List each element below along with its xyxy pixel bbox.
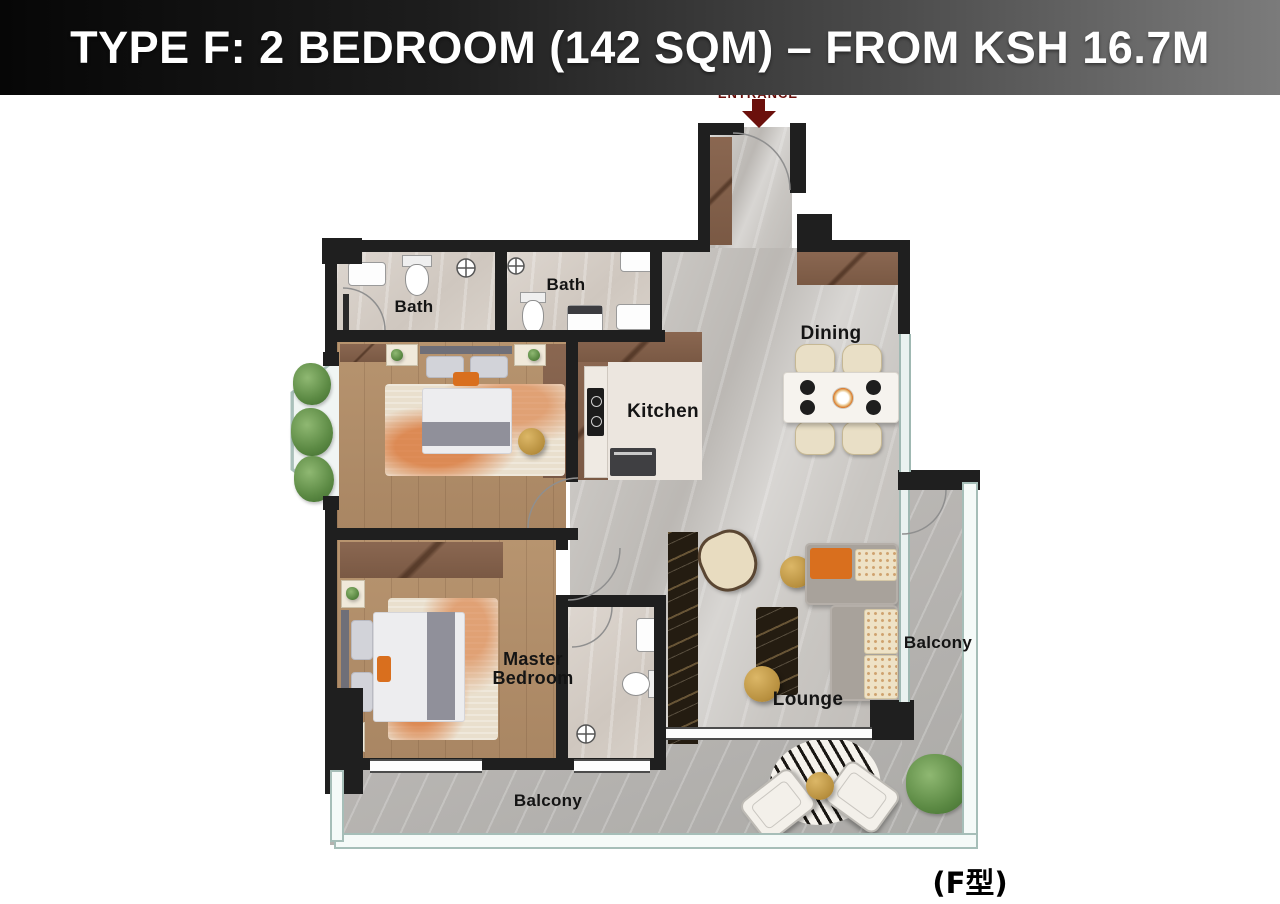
lounge-label: Lounge — [768, 689, 848, 711]
bedroom2-nightstand — [514, 344, 546, 366]
bath-right-toilet — [522, 300, 544, 334]
bath-right-sink — [616, 304, 654, 330]
bay-plant-icon — [293, 363, 331, 405]
kitchen-oven — [610, 448, 656, 476]
wall-segment — [698, 123, 710, 250]
balcony-plant-icon — [906, 754, 968, 814]
wall-segment — [325, 330, 665, 342]
wall-segment — [323, 352, 339, 366]
bedroom2-cabinet — [340, 344, 388, 362]
bedroom-balcony-slider — [370, 759, 482, 773]
wall-segment — [654, 595, 666, 770]
dining-chair — [795, 421, 835, 455]
bath-left-label: Bath — [374, 297, 454, 317]
wall-segment — [797, 214, 832, 252]
wall-segment — [323, 496, 339, 510]
balcony-bottom-label: Balcony — [506, 791, 590, 811]
kitchen-label: Kitchen — [620, 401, 706, 423]
balcony-railing — [330, 770, 344, 842]
dining-chair — [842, 421, 882, 455]
bedroom-balcony-slider — [574, 759, 650, 773]
wall-segment — [325, 240, 337, 366]
wall-segment — [870, 700, 914, 740]
sofa-cushion — [864, 609, 898, 654]
wall-segment — [556, 528, 568, 550]
entrance-arrowhead-icon — [742, 111, 776, 128]
master-bedroom-label: Master Bedroom — [489, 650, 577, 688]
lounge-balcony-glass — [899, 490, 910, 702]
bath-right-label: Bath — [526, 275, 606, 295]
lounge-balcony-slider — [666, 727, 872, 740]
balcony-railing — [334, 833, 978, 849]
master-wardrobe — [340, 542, 503, 578]
unit-type-label: (F型) — [890, 860, 1050, 902]
title-banner: TYPE F: 2 BEDROOM (142 SQM) – FROM KSH 1… — [0, 0, 1280, 95]
wall-segment — [556, 595, 666, 607]
balcony-railing — [962, 482, 978, 842]
bedroom2-pouf — [518, 428, 545, 455]
sofa-cushion — [864, 655, 898, 699]
wall-segment — [698, 123, 744, 135]
floor-plan-page: TYPE F: 2 BEDROOM (142 SQM) – FROM KSH 1… — [0, 0, 1280, 904]
wall-segment — [790, 123, 806, 193]
page-title: TYPE F: 2 BEDROOM (142 SQM) – FROM KSH 1… — [70, 22, 1210, 74]
wall-segment — [898, 240, 910, 334]
dining-window — [899, 334, 911, 472]
balcony-right-label: Balcony — [896, 633, 980, 653]
sofa-cushion — [855, 549, 897, 581]
sofa-cushion-orange — [810, 548, 852, 579]
dining-label: Dining — [791, 323, 871, 345]
wall-segment — [343, 294, 349, 330]
tv-feature-wall — [668, 532, 698, 744]
bedroom2-bed — [420, 346, 512, 454]
bath-left-toilet — [405, 264, 429, 296]
wall-segment — [650, 240, 662, 342]
master-nightstand — [341, 580, 365, 608]
dining-table — [783, 372, 899, 423]
entry-closet — [710, 137, 732, 245]
bay-plant-icon — [291, 408, 333, 456]
wall-segment — [325, 528, 578, 540]
balcony-table — [806, 772, 834, 800]
bedroom2-nightstand — [386, 344, 418, 366]
bath-left-sink — [348, 262, 386, 286]
kitchen-stove — [587, 388, 604, 436]
ensuite-toilet — [622, 672, 650, 696]
entry-cabinet — [797, 252, 898, 285]
wall-segment — [566, 340, 578, 482]
wall-segment — [495, 240, 507, 342]
